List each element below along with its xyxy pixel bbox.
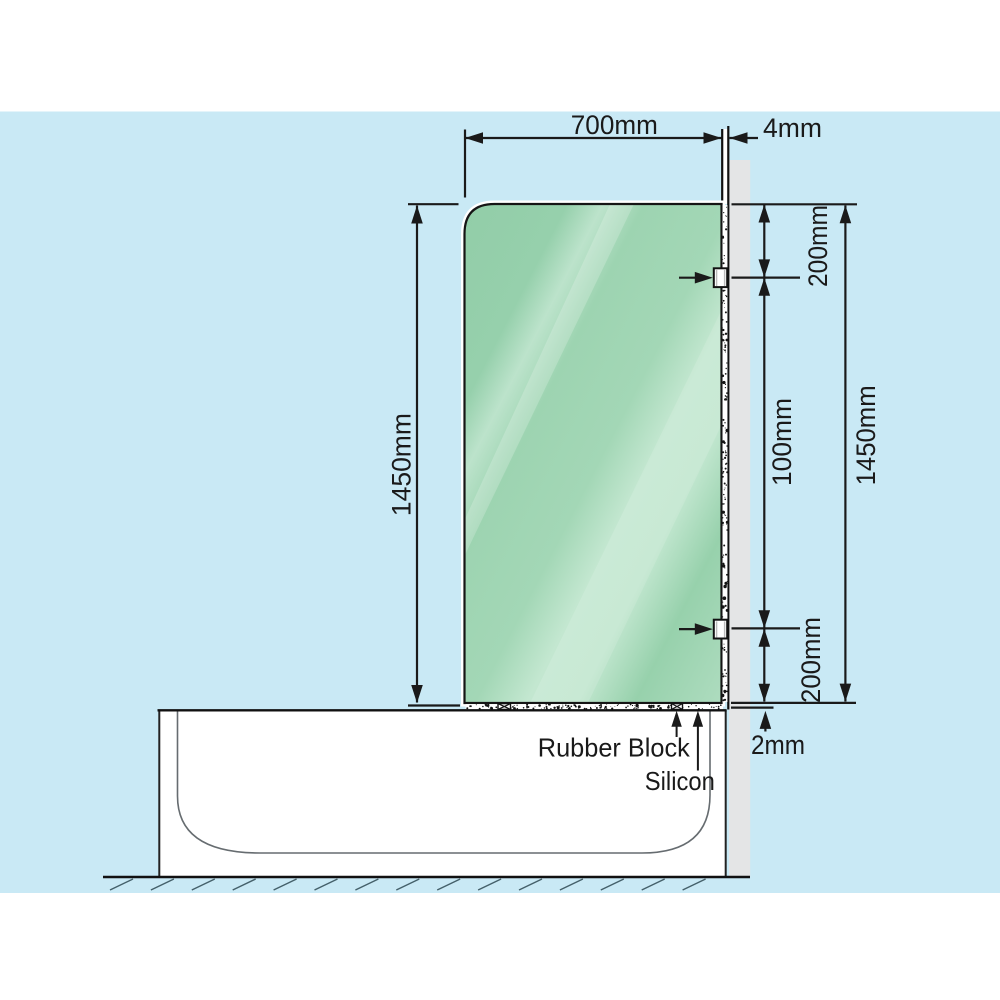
svg-text:100mm: 100mm (767, 398, 797, 486)
svg-text:200mm: 200mm (803, 205, 833, 287)
svg-text:1450mm: 1450mm (387, 413, 417, 516)
svg-text:200mm: 200mm (796, 617, 826, 703)
svg-text:4mm: 4mm (763, 113, 822, 143)
svg-text:2mm: 2mm (751, 730, 805, 760)
svg-text:Rubber Block: Rubber Block (538, 733, 691, 763)
svg-text:700mm: 700mm (571, 110, 658, 140)
svg-text:1450mm: 1450mm (851, 385, 881, 485)
svg-text:Silicon: Silicon (645, 766, 715, 796)
